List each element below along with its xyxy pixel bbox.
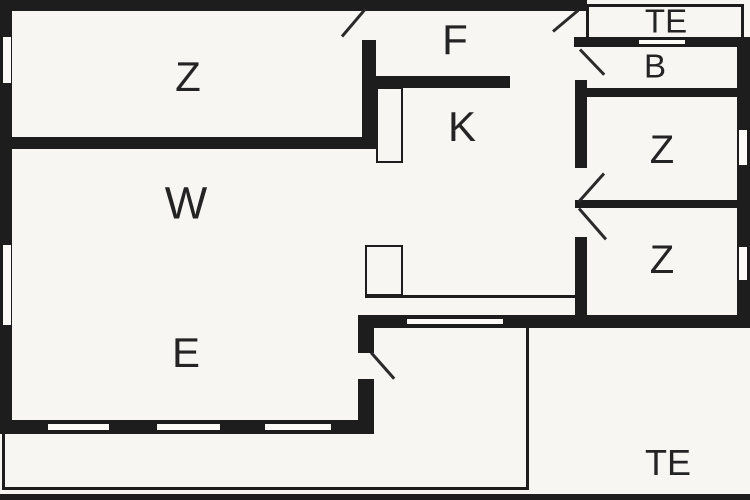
door-swing-e-room	[370, 352, 395, 380]
room-label-e: E	[172, 332, 200, 374]
fixture-chimney	[376, 87, 403, 163]
wall-vertical-divider	[362, 40, 376, 149]
wall-right-outer	[737, 37, 750, 328]
door-swing-z-top-left	[341, 8, 367, 37]
photo-bottom-edge	[0, 494, 750, 500]
window-e-bottom-1	[46, 422, 111, 432]
window-left-upper	[3, 37, 11, 83]
door-swing-bath	[579, 48, 605, 75]
room-label-k: K	[448, 106, 476, 148]
window-right-upper	[739, 130, 747, 165]
wall-top	[0, 0, 587, 11]
window-e-bottom-3	[263, 422, 333, 432]
room-label-terrace-bottom: TE	[645, 445, 691, 481]
window-left-lower	[3, 245, 11, 325]
hall-counter-line	[365, 295, 578, 298]
wall-e-right-lower	[358, 379, 374, 434]
room-label-b: B	[644, 50, 666, 83]
door-swing-hall-entry	[552, 9, 579, 33]
wall-b-z1	[587, 88, 737, 97]
room-label-z-right-lower: Z	[650, 240, 674, 280]
door-swing-z-right-upper	[578, 173, 606, 203]
wall-z1-z2	[587, 200, 737, 208]
wall-hall-right-c	[575, 237, 587, 317]
room-label-terrace-top: TE	[645, 5, 687, 38]
floor-plan: Z F K TE B Z Z W E TE	[0, 0, 750, 500]
fixture-hall-box	[365, 245, 403, 296]
window-right-lower	[739, 247, 747, 280]
wall-z-w-divider	[0, 137, 376, 149]
room-label-w: W	[165, 181, 207, 226]
terrace-right-line	[526, 328, 529, 490]
terrace-bottom-left-line	[2, 434, 5, 490]
room-label-z-right-upper: Z	[650, 130, 674, 170]
wall-hall-right-a	[575, 80, 587, 168]
window-hall-south	[405, 317, 505, 326]
room-label-z-top-left: Z	[175, 56, 201, 98]
window-e-bottom-2	[155, 422, 222, 432]
room-label-f: F	[442, 19, 468, 61]
terrace-bottom-line	[2, 487, 529, 490]
door-swing-z-right-lower	[578, 208, 607, 241]
